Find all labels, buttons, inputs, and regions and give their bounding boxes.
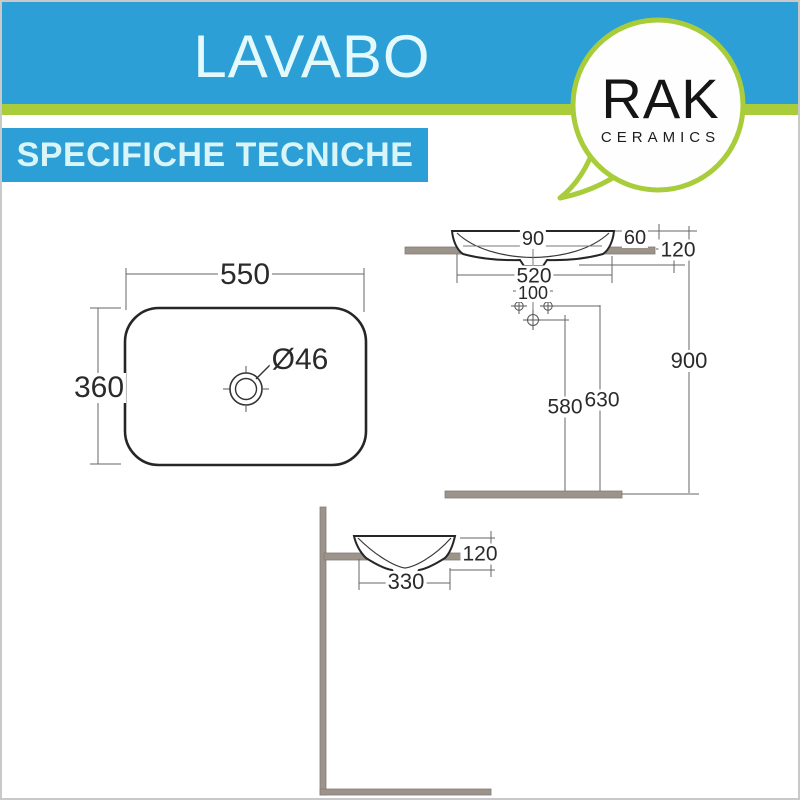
wall-front	[320, 507, 326, 795]
dim-front-width: 330	[386, 571, 427, 593]
dim-front-height: 120	[460, 544, 499, 565]
dim-side-hole-back: 630	[582, 390, 621, 411]
dim-side-total-height: 900	[669, 350, 710, 372]
dim-side-hole-spacing: 100	[516, 284, 550, 302]
dim-side-hole-front: 580	[545, 397, 584, 418]
floor-side	[445, 491, 622, 498]
dim-side-height: 120	[658, 240, 697, 261]
dim-plan-depth: 360	[72, 373, 126, 403]
counter-left	[405, 247, 463, 254]
dim-plan-width: 550	[218, 260, 272, 290]
dim-plan-drain: Ø46	[270, 345, 331, 375]
floor-front	[320, 789, 491, 795]
spec-sheet: LAVABO SPECIFICHE TECNICHE RAK CERAMICS	[0, 0, 800, 800]
dim-side-rim: 90	[520, 229, 546, 249]
dim-side-overhang: 60	[622, 228, 648, 248]
